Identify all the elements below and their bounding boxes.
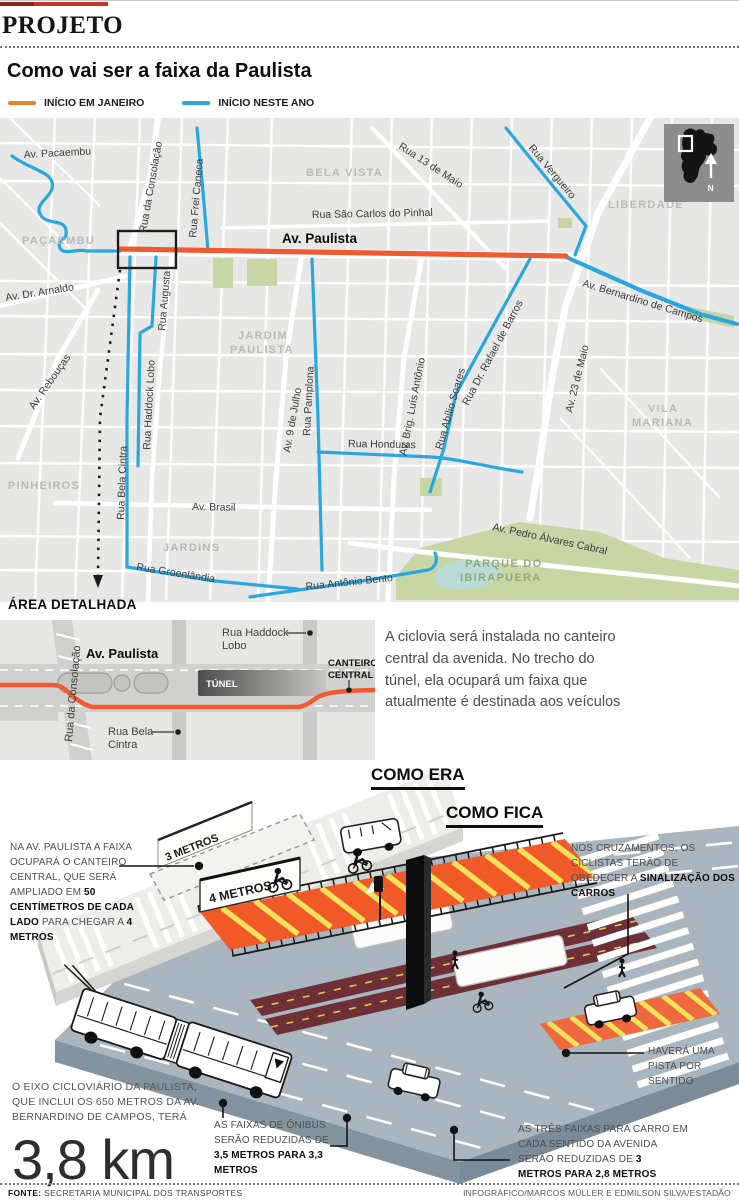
note-one-lane-per-direction: HAVERÁ UMA PISTA POR SENTIDO <box>648 1044 728 1089</box>
svg-text:Rua Bela: Rua Bela <box>108 726 154 738</box>
svg-text:CANTEIRO: CANTEIRO <box>328 658 375 669</box>
source-line: FONTE: SECRETARIA MUNICIPAL DOS TRANSPOR… <box>8 1188 242 1198</box>
detail-paragraph: A ciclovia será instalada no canteiro ce… <box>385 627 627 714</box>
legend-this-year-label: INÍCIO NESTE ANO <box>218 97 314 109</box>
dotted-rule-top <box>0 46 739 48</box>
label-brasil: Av. Brasil <box>192 501 236 514</box>
detail-paulista-label: Av. Paulista <box>86 646 159 661</box>
label-sao-carlos: Rua São Carlos do Pinhal <box>312 207 433 221</box>
source-text: SECRETARIA MUNICIPAL DOS TRANSPORTES <box>44 1188 242 1198</box>
svg-text:Rua Haddock: Rua Haddock <box>222 627 289 639</box>
detail-tunnel-label: TÚNEL <box>206 678 238 690</box>
length-stat: O EIXO CICLOVIÁRIO DA PAULISTA, QUE INCL… <box>12 1080 208 1192</box>
legend-orange-swatch <box>8 101 36 105</box>
monolith <box>406 855 424 1010</box>
district-vila-2: MARIANA <box>632 417 693 429</box>
legend-blue-swatch <box>182 101 210 105</box>
district-parque-1: PARQUE DO <box>465 558 543 570</box>
page-title: Como vai ser a faixa da Paulista <box>7 60 312 83</box>
locator-inset: N <box>664 124 734 202</box>
kicker-bar <box>34 2 108 6</box>
kicker-bar-dark <box>0 2 34 6</box>
top-hairline <box>0 0 739 1</box>
svg-text:Cintra: Cintra <box>108 739 138 751</box>
district-jardim-1: JARDIM <box>238 330 288 342</box>
detail-heading: ÁREA DETALHADA <box>8 597 137 612</box>
district-jardim-2: PAULISTA <box>230 344 294 356</box>
svg-text:CENTRAL: CENTRAL <box>328 670 374 681</box>
label-paulista: Av. Paulista <box>282 231 358 246</box>
district-bela-vista: BELA VISTA <box>306 167 383 179</box>
dotted-rule-bottom <box>0 1183 739 1185</box>
detail-map: TÚNEL Rua da Consolação Av. Paulista Rua… <box>0 620 375 760</box>
before-label: COMO ERA <box>371 765 465 790</box>
source-label: FONTE: <box>8 1188 41 1198</box>
note-median-widening: NA AV. PAULISTA A FAIXA OCUPARÁ O CANTEI… <box>10 840 144 945</box>
district-pacaembu: PAÇAEMBU <box>22 235 95 247</box>
north-label: N <box>708 183 714 193</box>
svg-text:Lobo: Lobo <box>222 640 246 652</box>
legend-january-label: INÍCIO EM JANEIRO <box>44 97 144 109</box>
district-jardins: JARDINS <box>163 542 220 554</box>
map-legend: INÍCIO EM JANEIRO INÍCIO NESTE ANO <box>8 97 314 109</box>
district-parque-2: IBIRAPUERA <box>460 572 541 584</box>
stat-value: 3,8 km <box>12 1127 208 1192</box>
district-pinheiros: PINHEIROS <box>8 480 80 492</box>
credit-line: INFOGRÁFICO/MARCOS MÜLLER E EDMILSON SIL… <box>339 1188 731 1198</box>
after-label: COMO FICA <box>446 803 543 828</box>
note-car-lanes: AS TRÊS FAIXAS PARA CARRO EM CADA SENTID… <box>518 1122 688 1182</box>
note-bus-lanes: AS FAIXAS DE ÔNIBUS SERÃO REDUZIDAS DE 3… <box>214 1118 336 1178</box>
city-map: Av. Pacaembu Rua da Consolação Rua Frei … <box>0 118 739 602</box>
label-honduras: Rua Honduras <box>348 438 416 451</box>
stat-intro: O EIXO CICLOVIÁRIO DA PAULISTA, QUE INCL… <box>12 1080 208 1126</box>
district-vila-1: VILA <box>648 403 678 415</box>
note-crossings: NOS CRUZAMENTOS, OS CICLISTAS TERÃO DE O… <box>571 841 737 901</box>
section-kicker: PROJETO <box>2 12 123 40</box>
